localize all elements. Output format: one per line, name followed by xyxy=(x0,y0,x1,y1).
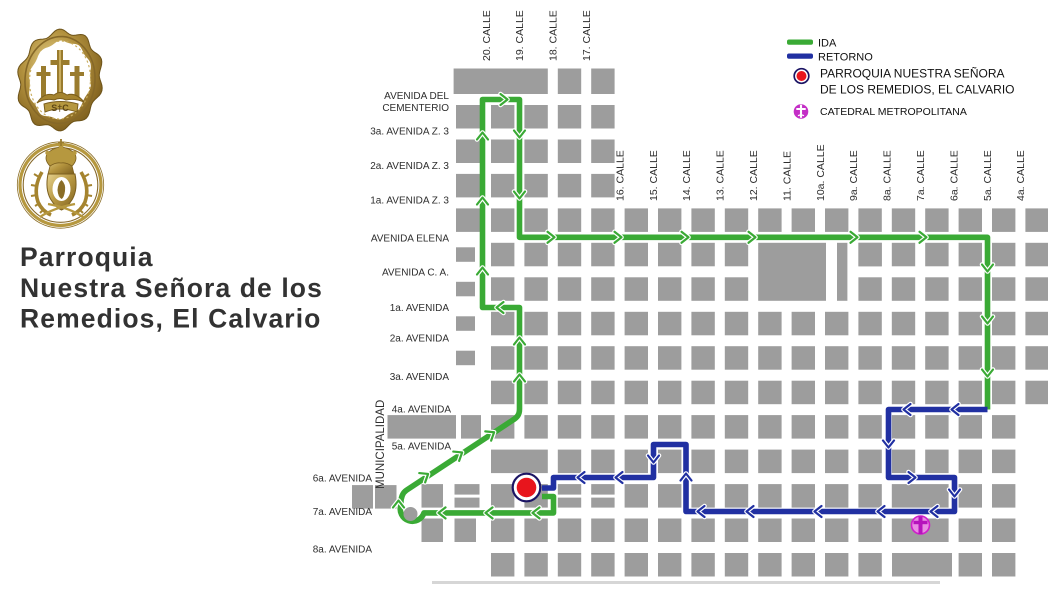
svg-text:3a. AVENIDA Z. 3: 3a. AVENIDA Z. 3 xyxy=(370,127,449,138)
svg-text:CATEDRAL METROPOLITANA: CATEDRAL METROPOLITANA xyxy=(820,106,967,118)
svg-text:PARROQUIA NUESTRA SEÑORA: PARROQUIA NUESTRA SEÑORA xyxy=(820,67,1004,81)
svg-text:8a. AVENIDA: 8a. AVENIDA xyxy=(313,544,373,555)
svg-text:RETORNO: RETORNO xyxy=(818,52,873,64)
svg-text:7a. AVENIDA: 7a. AVENIDA xyxy=(313,507,373,518)
svg-text:MUNICIPALIDAD: MUNICIPALIDAD xyxy=(375,400,387,489)
svg-text:4a. AVENIDA: 4a. AVENIDA xyxy=(392,405,452,416)
svg-text:15. CALLE: 15. CALLE xyxy=(648,150,660,201)
svg-text:3a. AVENIDA: 3a. AVENIDA xyxy=(390,372,450,383)
svg-text:10a. CALLE: 10a. CALLE xyxy=(815,144,827,201)
svg-text:DE LOS REMEDIOS, EL CALVARIO: DE LOS REMEDIOS, EL CALVARIO xyxy=(820,83,1015,97)
svg-text:2a. AVENIDA Z. 3: 2a. AVENIDA Z. 3 xyxy=(370,161,449,172)
svg-text:14. CALLE: 14. CALLE xyxy=(681,150,693,201)
svg-text:7a. CALLE: 7a. CALLE xyxy=(915,150,927,201)
svg-text:18. CALLE: 18. CALLE xyxy=(548,10,560,61)
svg-text:5a. AVENIDA: 5a. AVENIDA xyxy=(392,442,452,453)
svg-text:12. CALLE: 12. CALLE xyxy=(748,150,760,201)
svg-text:13. CALLE: 13. CALLE xyxy=(715,150,727,201)
svg-text:2a. AVENIDA: 2a. AVENIDA xyxy=(390,334,450,345)
svg-text:6a. CALLE: 6a. CALLE xyxy=(948,150,960,201)
svg-text:4a. CALLE: 4a. CALLE xyxy=(1015,150,1027,201)
svg-text:Parroquia: Parroquia xyxy=(20,242,154,272)
svg-text:CEMENTERIO: CEMENTERIO xyxy=(382,103,449,114)
svg-text:5a. CALLE: 5a. CALLE xyxy=(982,150,994,201)
svg-text:11. CALLE: 11. CALLE xyxy=(781,151,793,201)
svg-text:20. CALLE: 20. CALLE xyxy=(481,10,493,61)
svg-text:17. CALLE: 17. CALLE xyxy=(581,10,593,61)
svg-text:Remedios, El Calvario: Remedios, El Calvario xyxy=(20,304,321,334)
svg-text:S†C: S†C xyxy=(51,103,69,113)
svg-text:Nuestra Señora de los: Nuestra Señora de los xyxy=(20,273,323,303)
svg-text:1a. AVENIDA Z. 3: 1a. AVENIDA Z. 3 xyxy=(370,195,449,206)
svg-text:6a. AVENIDA: 6a. AVENIDA xyxy=(313,474,373,485)
svg-text:AVENIDA DEL: AVENIDA DEL xyxy=(384,91,449,102)
svg-text:IDA: IDA xyxy=(818,38,837,50)
svg-text:AVENIDA ELENA: AVENIDA ELENA xyxy=(371,234,450,245)
svg-text:1a. AVENIDA: 1a. AVENIDA xyxy=(390,303,450,314)
svg-text:AVENIDA C. A.: AVENIDA C. A. xyxy=(382,268,449,279)
svg-text:9a. CALLE: 9a. CALLE xyxy=(848,150,860,201)
svg-text:19. CALLE: 19. CALLE xyxy=(514,10,526,61)
svg-text:8a. CALLE: 8a. CALLE xyxy=(882,150,894,201)
svg-text:16. CALLE: 16. CALLE xyxy=(614,150,626,201)
